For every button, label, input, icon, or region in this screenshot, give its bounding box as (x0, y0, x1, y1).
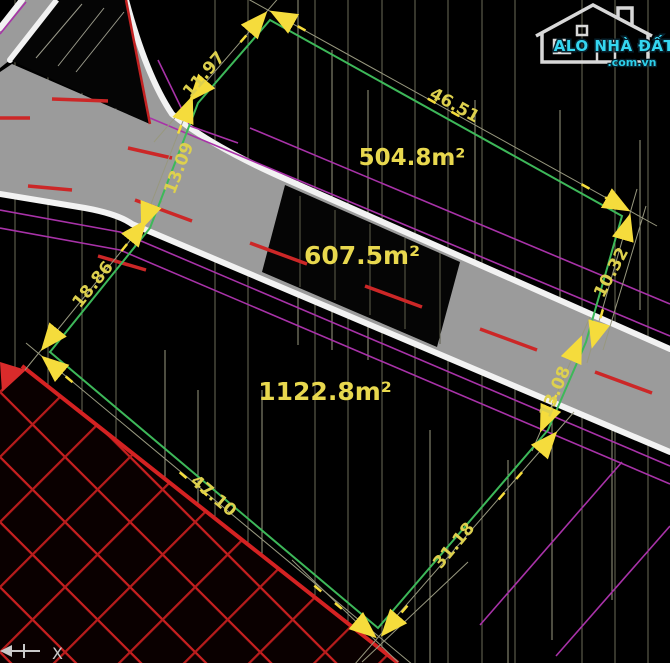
cad-canvas: 11.97 13.09 18.86 47.10 31.18 13.08 10.3… (0, 0, 670, 663)
brand-domain-text: .com.vn (608, 56, 657, 69)
area-label-middle-parcel: 607.5m² (304, 241, 420, 270)
brand-text: ALO NHÀ ĐẤT (554, 34, 670, 55)
cad-viewport: 11.97 13.09 18.86 47.10 31.18 13.08 10.3… (0, 0, 670, 663)
ucs-x-label: X (52, 644, 63, 663)
area-label-bottom-parcel: 1122.8m² (258, 377, 391, 406)
area-label-top-parcel: 504.8m² (359, 145, 466, 171)
